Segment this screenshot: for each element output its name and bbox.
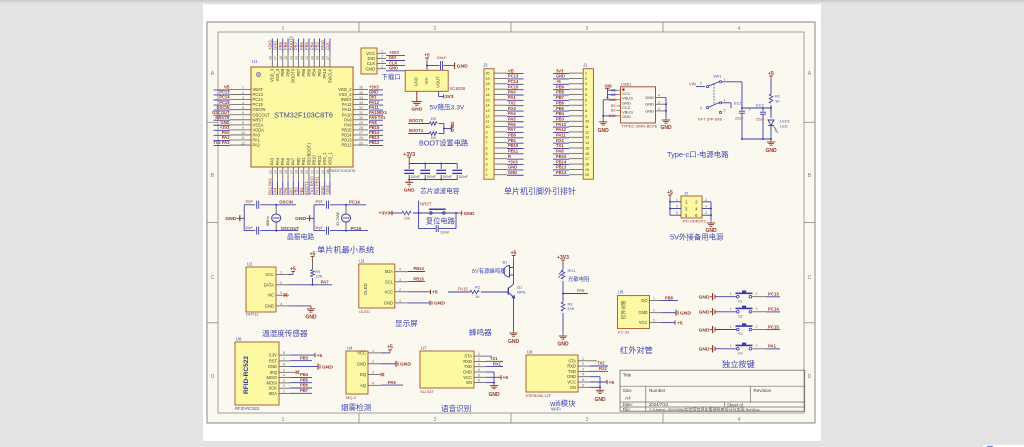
svg-text:31: 31 (359, 111, 363, 115)
svg-text:GND: GND (638, 310, 647, 315)
svg-text:9: 9 (486, 130, 488, 134)
svg-text:显示屏: 显示屏 (395, 319, 418, 328)
svg-text:RXD: RXD (567, 364, 576, 369)
svg-text:PB7: PB7 (300, 388, 309, 393)
svg-text:DQ: DQ (360, 372, 366, 377)
svg-text:VIN: VIN (689, 82, 696, 87)
svg-text:Type-c口-电源电路: Type-c口-电源电路 (667, 150, 729, 159)
svg-text:5: 5 (283, 368, 285, 372)
svg-text:11: 11 (241, 136, 245, 140)
svg-text:1: 1 (676, 198, 678, 202)
svg-text:6: 6 (582, 383, 584, 387)
svg-text:A: A (808, 71, 812, 77)
svg-text:RX2: RX2 (599, 366, 608, 371)
svg-text:PA7: PA7 (321, 279, 330, 284)
svg-text:4: 4 (705, 205, 707, 209)
svg-text:D: D (808, 374, 812, 380)
svg-text:VCC: VCC (639, 320, 648, 325)
svg-text:SDA: SDA (385, 269, 394, 274)
svg-text:30pF: 30pF (245, 226, 253, 230)
svg-text:PB9: PB9 (280, 68, 285, 76)
svg-text:22: 22 (316, 170, 320, 174)
svg-text:VCC: VCC (567, 380, 576, 385)
svg-text:VCC: VCC (357, 350, 366, 355)
svg-text:PB15: PB15 (556, 154, 567, 159)
svg-text:USB1: USB1 (621, 82, 632, 87)
svg-text:SCK: SCK (269, 386, 278, 391)
svg-text:R2: R2 (475, 285, 480, 289)
svg-text:U6: U6 (236, 337, 242, 342)
svg-text:PB11: PB11 (317, 155, 322, 165)
svg-text:15: 15 (585, 146, 589, 150)
svg-text:STM32F103C8T6: STM32F103C8T6 (274, 111, 333, 120)
svg-text:GND: GND (557, 342, 569, 348)
svg-text:3: 3 (283, 379, 285, 383)
svg-text:+3V3: +3V3 (403, 152, 415, 158)
svg-text:PB13: PB13 (556, 165, 567, 170)
svg-text:5V有源蜂鸣器: 5V有源蜂鸣器 (472, 267, 506, 275)
svg-text:PC15: PC15 (768, 324, 779, 329)
svg-text:MISO: MISO (267, 375, 277, 380)
svg-text:12: 12 (585, 130, 589, 134)
svg-text:GND: GND (699, 295, 710, 301)
svg-text:GND: GND (322, 364, 333, 370)
svg-text:PB14: PB14 (414, 266, 425, 271)
svg-text:PA7: PA7 (288, 187, 293, 195)
svg-text:4: 4 (738, 26, 741, 32)
svg-text:27: 27 (359, 131, 363, 135)
svg-text:2: 2 (434, 26, 437, 32)
svg-text:A4: A4 (625, 396, 631, 401)
svg-text:100nF: 100nF (410, 175, 419, 179)
svg-text:+5: +5 (667, 190, 673, 196)
svg-text:18: 18 (295, 170, 299, 174)
svg-text:2: 2 (653, 309, 655, 313)
svg-text:1: 1 (478, 352, 480, 356)
svg-text:PB3: PB3 (300, 355, 309, 360)
svg-text:42: 42 (300, 56, 304, 60)
svg-text:+5: +5 (511, 250, 517, 256)
svg-text:TX2: TX2 (597, 361, 605, 366)
svg-text:24: 24 (326, 170, 330, 174)
svg-text:PA6: PA6 (283, 187, 288, 195)
svg-text:TXD: TXD (568, 369, 576, 374)
svg-text:C: C (808, 275, 812, 281)
svg-text:J1: J1 (583, 63, 588, 68)
svg-text:PB14: PB14 (556, 159, 567, 164)
svg-text:PB5: PB5 (304, 42, 309, 50)
svg-text:36: 36 (359, 86, 363, 90)
svg-text:PB8: PB8 (283, 42, 288, 50)
svg-text:+3V3: +3V3 (325, 185, 330, 195)
svg-text:3: 3 (586, 26, 589, 32)
svg-text:PB0: PB0 (508, 133, 517, 138)
svg-text:33: 33 (359, 101, 363, 105)
svg-text:EN: EN (570, 385, 576, 390)
svg-text:PA6: PA6 (285, 157, 290, 165)
svg-text:6: 6 (585, 98, 587, 102)
svg-text:5: 5 (242, 106, 244, 110)
svg-text:PB7: PB7 (556, 95, 565, 100)
svg-text:ESP8266-12F: ESP8266-12F (526, 393, 552, 398)
svg-text:4: 4 (372, 381, 374, 385)
svg-text:GND: GND (645, 108, 654, 113)
svg-text:SWCLK: SWCLK (327, 69, 332, 84)
svg-text:NPN: NPN (517, 290, 526, 295)
svg-text:PA15: PA15 (320, 40, 325, 50)
svg-text:单片机最小系统: 单片机最小系统 (317, 245, 374, 255)
svg-text:+5: +5 (768, 71, 774, 77)
svg-text:U7: U7 (421, 346, 427, 351)
svg-text:11: 11 (486, 120, 490, 124)
svg-text:7: 7 (283, 357, 285, 361)
svg-text:PB7: PB7 (294, 42, 299, 50)
svg-text:1: 1 (486, 173, 488, 177)
svg-text:PB12: PB12 (341, 143, 352, 148)
svg-text:PB12: PB12 (556, 170, 567, 175)
svg-text:VOUT: VOUT (435, 76, 440, 88)
svg-text:PC13: PC13 (768, 292, 779, 297)
svg-text:VIN: VIN (424, 78, 429, 85)
svg-text:PA12: PA12 (556, 127, 567, 132)
svg-text:PB4: PB4 (312, 68, 317, 76)
svg-text:GND: GND (622, 114, 631, 119)
svg-text:SU-03T: SU-03T (420, 389, 434, 394)
svg-text:U3: U3 (359, 259, 365, 264)
svg-text:PB4: PB4 (300, 372, 309, 377)
svg-text:43: 43 (295, 56, 299, 60)
svg-text:12: 12 (486, 114, 490, 118)
svg-text:1: 1 (730, 325, 732, 329)
svg-text:芯片滤波电容: 芯片滤波电容 (420, 186, 460, 195)
svg-text:PA8: PA8 (556, 149, 564, 154)
svg-text:15: 15 (486, 98, 490, 102)
svg-text:GND: GND (457, 63, 468, 69)
svg-text:28: 28 (359, 126, 363, 130)
svg-text:PB1: PB1 (508, 138, 517, 143)
svg-text:PB5: PB5 (556, 106, 565, 111)
svg-text:2: 2 (486, 168, 488, 172)
svg-text:+5: +5 (290, 266, 296, 272)
svg-text:TX1: TX1 (556, 143, 564, 148)
svg-text:GND: GND (680, 311, 691, 317)
svg-text:22uF: 22uF (756, 118, 765, 122)
svg-text:RST: RST (269, 358, 278, 363)
svg-text:RG1: RG1 (568, 269, 576, 273)
svg-text:VCC: VCC (384, 289, 393, 294)
svg-text:8: 8 (283, 351, 285, 355)
svg-text:BOOT1: BOOT1 (304, 180, 309, 195)
svg-text:4: 4 (242, 101, 244, 105)
svg-text:9: 9 (242, 126, 244, 130)
svg-text:PC15: PC15 (508, 84, 519, 89)
svg-text:VCC: VCC (463, 375, 472, 380)
svg-text:+5: +5 (317, 353, 323, 359)
svg-text:3: 3 (478, 363, 480, 367)
svg-text:GND: GND (404, 188, 415, 194)
svg-text:13: 13 (486, 109, 490, 113)
svg-text:S3: S3 (738, 332, 743, 336)
svg-text:GND: GND (699, 327, 710, 333)
svg-text:GND: GND (389, 66, 398, 71)
svg-text:AQ: AQ (360, 383, 366, 388)
svg-text:100nF: 100nF (426, 175, 435, 179)
svg-text:光敏电阻: 光敏电阻 (568, 275, 590, 283)
svg-text:PA7: PA7 (508, 127, 516, 132)
svg-text:U2: U2 (247, 262, 253, 267)
svg-text:5: 5 (478, 373, 480, 377)
svg-text:CLK: CLK (325, 42, 330, 50)
svg-text:3: 3 (658, 100, 660, 104)
svg-text:4: 4 (585, 88, 587, 92)
svg-text:BOOT1: BOOT1 (409, 128, 424, 133)
svg-text:语音识别: 语音识别 (441, 403, 471, 413)
svg-text:D: D (211, 374, 215, 380)
svg-text:19: 19 (300, 170, 304, 174)
svg-text:37: 37 (326, 56, 330, 60)
svg-text:34: 34 (359, 96, 363, 100)
svg-text:2: 2 (478, 357, 480, 361)
svg-text:PA5: PA5 (278, 187, 283, 195)
svg-text:1: 1 (582, 357, 584, 361)
svg-text:TYPEC-304D-BCP6: TYPEC-304D-BCP6 (621, 124, 658, 129)
svg-text:PB6: PB6 (301, 68, 306, 76)
svg-text:PA5: PA5 (280, 157, 285, 165)
svg-text:B9: B9 (611, 109, 616, 113)
svg-text:44: 44 (289, 56, 293, 60)
svg-text:10K: 10K (568, 307, 575, 311)
svg-text:3: 3 (653, 319, 655, 323)
svg-text:8: 8 (585, 109, 587, 113)
svg-text:GND: GND (464, 211, 475, 217)
svg-text:1: 1 (730, 292, 732, 296)
svg-text:6: 6 (724, 109, 726, 113)
svg-text:GND: GND (699, 310, 710, 316)
svg-text:4: 4 (738, 417, 741, 423)
svg-text:RX2: RX2 (508, 106, 517, 111)
svg-text:PB8: PB8 (665, 295, 674, 300)
svg-text:PB1: PB1 (301, 157, 306, 165)
svg-text:2: 2 (399, 288, 401, 292)
svg-text:21: 21 (310, 170, 314, 174)
svg-text:20: 20 (305, 170, 309, 174)
svg-text:14: 14 (486, 104, 490, 108)
svg-text:3V3: 3V3 (556, 68, 564, 73)
svg-text:4: 4 (399, 268, 401, 272)
svg-text:BOOT0: BOOT0 (288, 35, 293, 50)
svg-text:9: 9 (585, 114, 587, 118)
svg-text:RX1: RX1 (556, 138, 565, 143)
svg-text:13: 13 (269, 170, 273, 174)
svg-text:PB6: PB6 (300, 383, 309, 388)
svg-text:GND: GND (273, 41, 278, 50)
svg-text:蜂鸣器: 蜂鸣器 (469, 327, 492, 337)
svg-text:GND: GND (645, 95, 654, 100)
svg-text:PC14: PC14 (768, 307, 779, 312)
svg-text:B5: B5 (611, 104, 616, 108)
svg-text:Title: Title (623, 372, 632, 377)
svg-text:Number: Number (649, 388, 666, 393)
svg-text:2: 2 (242, 91, 244, 95)
svg-text:5: 5 (700, 107, 702, 111)
svg-text:1: 1 (399, 299, 401, 303)
svg-text:8: 8 (486, 136, 488, 140)
svg-text:GND: GND (305, 314, 317, 320)
svg-text:1: 1 (653, 297, 655, 301)
svg-text:17: 17 (585, 157, 589, 161)
svg-text:GND: GND (268, 364, 277, 369)
svg-text:GND: GND (508, 170, 517, 175)
svg-text:14: 14 (274, 170, 278, 174)
svg-text:100nF: 100nF (440, 231, 450, 235)
svg-text:16: 16 (486, 93, 490, 97)
svg-text:PC13: PC13 (508, 74, 519, 79)
svg-text:8: 8 (242, 121, 244, 125)
svg-text:PA0: PA0 (508, 90, 516, 95)
svg-text:PB4: PB4 (309, 42, 314, 50)
svg-text:48: 48 (269, 56, 273, 60)
svg-text:2: 2 (434, 417, 437, 423)
svg-text:VCC: VCC (265, 272, 274, 277)
svg-text:RX3 PB11: RX3 PB11 (315, 175, 320, 195)
svg-text:PB8: PB8 (556, 90, 565, 95)
svg-text:16: 16 (284, 170, 288, 174)
svg-text:4: 4 (724, 99, 726, 103)
svg-text:3V3: 3V3 (445, 94, 454, 100)
svg-text:+3V3: +3V3 (557, 255, 569, 261)
svg-text:+3V3: +3V3 (508, 159, 518, 164)
svg-text:5V外接备用电源: 5V外接备用电源 (670, 233, 724, 242)
svg-text:R9: R9 (315, 270, 320, 274)
svg-text:32: 32 (359, 106, 363, 110)
svg-text:20: 20 (585, 173, 589, 177)
svg-text:PB5: PB5 (306, 68, 311, 76)
svg-text:PB6: PB6 (299, 42, 304, 50)
svg-text:IRQ: IRQ (270, 370, 277, 375)
svg-text:晶振电路: 晶振电路 (287, 232, 314, 241)
svg-text:PB1: PB1 (299, 187, 304, 195)
svg-text:15: 15 (279, 170, 283, 174)
svg-text:单片机引脚外引排针: 单片机引脚外引排针 (504, 186, 576, 196)
svg-text:B: B (211, 173, 215, 179)
svg-text:PB15: PB15 (414, 276, 425, 281)
svg-text:7: 7 (585, 104, 587, 108)
svg-text:4: 4 (658, 94, 660, 98)
svg-text:PA4: PA4 (508, 111, 516, 116)
svg-text:PC15: PC15 (351, 226, 362, 231)
svg-text:TX3 PB10: TX3 PB10 (309, 176, 314, 195)
svg-text:BOOT0: BOOT0 (409, 118, 424, 123)
svg-text:EC2: EC2 (756, 103, 765, 108)
svg-text:PC14: PC14 (508, 79, 519, 84)
svg-text:30pF: 30pF (315, 200, 323, 204)
svg-text:PB9: PB9 (278, 42, 283, 50)
svg-text:PA5: PA5 (388, 380, 396, 385)
svg-text:29: 29 (359, 121, 363, 125)
svg-text:18: 18 (486, 82, 490, 86)
svg-text:R: R (508, 154, 511, 159)
svg-text:GND: GND (508, 339, 520, 345)
svg-text:1: 1 (724, 78, 726, 82)
svg-text:3.3V: 3.3V (269, 353, 278, 358)
svg-text:3: 3 (582, 367, 584, 371)
svg-text:3: 3 (486, 162, 488, 166)
svg-text:1: 1 (282, 26, 285, 32)
svg-text:GND: GND (320, 186, 325, 195)
svg-text:1: 1 (730, 307, 732, 311)
svg-text:4: 4 (283, 374, 285, 378)
svg-text:PA4: PA4 (275, 157, 280, 165)
svg-text:5: 5 (585, 93, 587, 97)
svg-text:NRST: NRST (420, 202, 432, 207)
svg-text:B: B (808, 173, 812, 179)
svg-text:5: 5 (582, 378, 584, 382)
svg-text:S2: S2 (738, 314, 743, 318)
svg-text:1K: 1K (475, 295, 480, 299)
svg-text:SDA: SDA (269, 391, 278, 396)
svg-text:2: 2 (700, 82, 702, 86)
svg-text:13: 13 (585, 136, 589, 140)
svg-text:GND: GND (463, 370, 472, 375)
svg-text:OLED: OLED (363, 283, 368, 295)
svg-text:烟雾检测: 烟雾检测 (341, 402, 372, 412)
svg-text:S4: S4 (738, 351, 743, 355)
svg-text:SCL: SCL (385, 279, 394, 284)
svg-text:3: 3 (399, 278, 401, 282)
svg-text:U8: U8 (527, 350, 533, 355)
svg-text:FC-33: FC-33 (618, 330, 630, 335)
svg-text:GND: GND (400, 362, 411, 368)
svg-text:18: 18 (585, 162, 589, 166)
svg-text:PA13: PA13 (556, 122, 567, 127)
svg-text:45: 45 (284, 56, 288, 60)
svg-text:10: 10 (241, 131, 245, 135)
svg-text:RX1: RX1 (493, 361, 502, 366)
svg-text:4: 4 (582, 373, 584, 377)
svg-text:2: 2 (705, 198, 707, 202)
svg-text:PB12: PB12 (369, 140, 380, 145)
svg-text:1: 1 (372, 349, 374, 353)
svg-text:GND: GND (225, 216, 236, 222)
svg-text:10K: 10K (404, 217, 411, 221)
svg-text:4: 4 (280, 302, 282, 306)
svg-text:2: 2 (756, 307, 758, 311)
svg-text:复位电路: 复位电路 (426, 217, 455, 226)
svg-text:STM32F103C8T6: STM32F103C8T6 (327, 169, 356, 173)
svg-text:10K: 10K (430, 117, 437, 121)
svg-text:4: 4 (478, 368, 480, 372)
svg-text:OSCOUT: OSCOUT (281, 226, 300, 231)
svg-text:17: 17 (486, 88, 490, 92)
svg-text:PB7: PB7 (296, 68, 301, 76)
svg-text:下载口: 下载口 (382, 72, 401, 81)
svg-text:10: 10 (486, 125, 490, 129)
svg-text:A: A (211, 71, 215, 77)
svg-text:39: 39 (316, 56, 320, 60)
svg-text:100nF: 100nF (436, 56, 447, 60)
svg-text:BOOT0: BOOT0 (291, 68, 296, 83)
svg-text:41: 41 (305, 56, 309, 60)
svg-text:VSS_1: VSS_1 (322, 152, 327, 165)
svg-text:GND: GND (598, 128, 610, 134)
svg-text:2: 2 (756, 325, 758, 329)
svg-text:XC6206: XC6206 (450, 86, 466, 91)
svg-text:100nF: 100nF (442, 175, 451, 179)
svg-text:PB11: PB11 (508, 149, 519, 154)
svg-text:PA7: PA7 (291, 157, 296, 165)
svg-text:OSCIN: OSCIN (279, 199, 293, 204)
svg-text:TXD: TXD (464, 364, 472, 369)
